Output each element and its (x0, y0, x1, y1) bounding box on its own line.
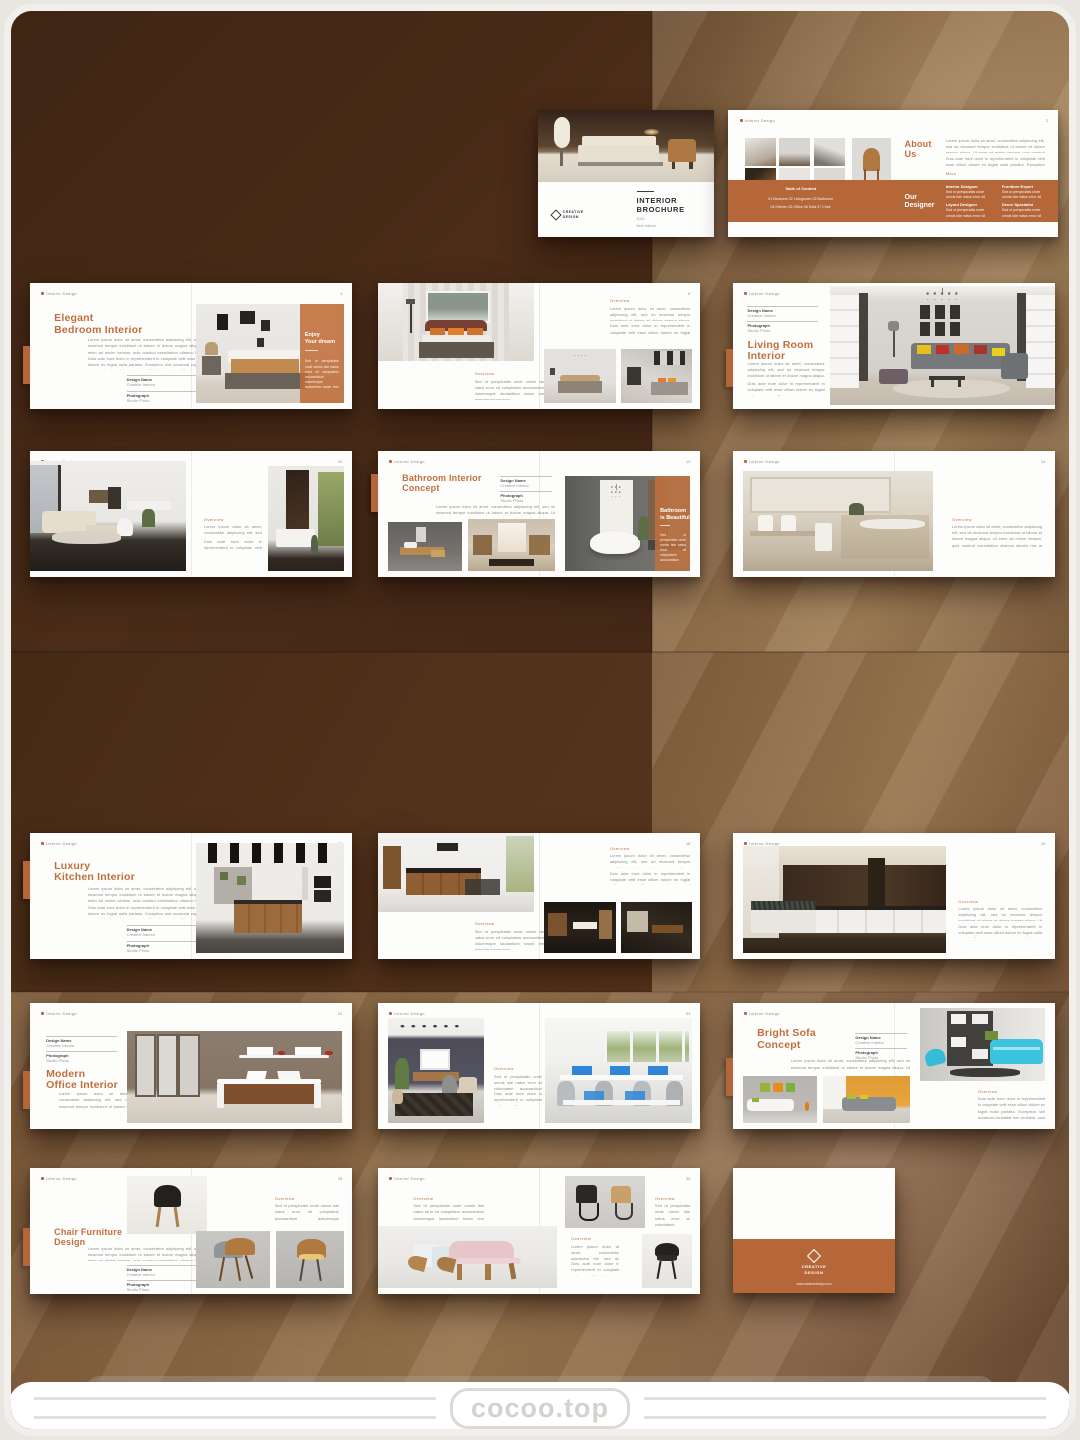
tan-chair-shape (611, 1186, 630, 1203)
bathroom-photo (468, 519, 555, 571)
chair-leg-shape (671, 1261, 677, 1280)
rug-shape (950, 1068, 1020, 1077)
island-edge-shape (573, 922, 598, 928)
spread-header: Interior Design (389, 1176, 425, 1181)
spread-title: ElegantBedroom Interior (54, 313, 142, 336)
bed-base-shape (225, 373, 308, 389)
plant-shape (220, 872, 229, 881)
body-text: Sed ut perspiciatis unde omnis iste natu… (655, 1203, 690, 1226)
desk-row-shape (563, 1100, 680, 1105)
spread-bright-sofa: Interior Design 26 Bright SofaConcept De… (733, 1003, 1055, 1129)
gallery-thumb (779, 138, 810, 166)
cushion-shape (752, 1098, 759, 1103)
rug-shape (489, 559, 534, 565)
bathroom-main-photo: Bathroomis Beautiful Sed ut perspiciatis… (565, 476, 691, 571)
bookmark-tab (371, 474, 378, 512)
sofa-photo (743, 1076, 817, 1123)
watermark-text: cocoo.top (450, 1388, 630, 1429)
page-number: 24 (686, 1011, 690, 1016)
wall-shelf-shape (239, 1055, 330, 1059)
monitor-blue-shape (584, 1091, 605, 1099)
cover-photo (538, 110, 714, 182)
body-text: Duis aute irure dolor in reprehenderit i… (88, 356, 207, 370)
wall-frame-shape (217, 314, 229, 330)
header-label: Interior Design (749, 1011, 780, 1016)
wood-wall-shape (783, 865, 945, 906)
oven-shape (314, 890, 330, 902)
credit-design: Design NameCreative Interior (127, 1265, 204, 1277)
spread-kitchen-wide: Interior Design 20 Overview Lorem ipsum … (733, 833, 1055, 959)
red-accent-shape (325, 1051, 333, 1055)
pillow-shape (860, 1095, 869, 1100)
spread-header: Interior Design (744, 1011, 780, 1016)
overlay-text: Sed ut perspiciatis unde omnis iste natu… (660, 533, 686, 561)
lamp-stem-shape (893, 331, 895, 357)
bathtub-shape (860, 519, 925, 529)
plant-shape (985, 1031, 998, 1040)
wall-frame-shape (261, 320, 270, 331)
divider-rule (637, 191, 655, 192)
window-green-shape (506, 836, 534, 892)
chair-leg-shape (457, 1264, 462, 1280)
art-square-shape (760, 1083, 770, 1092)
body-text: Lorem ipsum dolor sit amet, consectetur … (88, 886, 207, 902)
brand-logo: CREATIVEDESIGN (552, 210, 584, 219)
spread-header: Interior Design (41, 841, 77, 846)
carpet-shape (395, 1093, 472, 1116)
glass-door-shape (135, 1034, 156, 1097)
spread-living-room: Interior Design Design NameCreative Inte… (733, 283, 1055, 409)
mini-label: Overview (610, 846, 630, 851)
window-shape (830, 295, 859, 388)
body-text: Lorem ipsum dolor sit amet, consectetur … (204, 524, 262, 538)
cyan-chair-shape (923, 1047, 946, 1067)
table-leg-shape (931, 380, 934, 387)
ball-chair-shape (117, 518, 133, 536)
body-text: Lorem ipsum dolor sit amet, consectetur … (88, 337, 207, 353)
page-number: 28 (338, 1176, 342, 1181)
monitor-blue-shape (610, 1066, 631, 1074)
header-label: Interior Design (394, 1176, 425, 1181)
cantilever-leg-shape (579, 1203, 599, 1221)
floor-lamp-shape (554, 117, 570, 147)
overlay-text: Sed ut perspiciatis unde omnis iste natu… (305, 359, 339, 390)
spread-header: Interior Design (41, 1176, 77, 1181)
body-text: Duis aute irure dolor in reprehenderit i… (204, 539, 262, 553)
mini-label: Overview (204, 517, 224, 522)
cover-title: INTERIORBROCHURE (637, 196, 685, 214)
bedroom-photo (621, 349, 692, 403)
spread-title: LuxuryKitchen Interior (54, 861, 135, 884)
window-shape (509, 283, 534, 361)
website-url[interactable]: www.creativedesign.com (733, 1282, 895, 1286)
wall-frame-shape (257, 338, 264, 347)
art-square-shape (773, 1083, 783, 1092)
shelf-column-shape (868, 858, 884, 905)
credit-photo: PhotographStudio Photo (747, 321, 818, 333)
cyan-sofa-photo (920, 1008, 1046, 1081)
monitor-shape (420, 1049, 449, 1070)
band-heading: OurDesigner (905, 194, 935, 210)
red-accent-shape (278, 1051, 286, 1055)
track-lights-shape (397, 1022, 465, 1030)
bed-shape (651, 382, 688, 395)
body-text: Duis aute irure dolor in reprehenderit i… (610, 323, 691, 337)
credit-design: Design NameCreative Interior (46, 1036, 117, 1048)
island-base-shape (751, 910, 816, 934)
credit-photo: PhotographStudio Photo (500, 491, 552, 503)
template-preview-poster: CREATIVEDESIGN INTERIORBROCHURE 2022 Bes… (0, 0, 1080, 1440)
watermark-line (34, 1397, 436, 1419)
stools-shape (465, 879, 499, 895)
spread-bathroom-wide: Interior Design 14 Overview Lorem ipsum … (733, 451, 1055, 577)
brand-name: CREATIVE (733, 1264, 895, 1269)
body-text: Lorem ipsum dolor sit amet, consectetur … (436, 504, 555, 518)
mini-label: Overview (475, 921, 495, 926)
bed-base-shape (419, 342, 494, 358)
glass-door-shape (157, 1034, 178, 1097)
bookmark-tab (23, 1228, 30, 1266)
chair-leg-shape (485, 1264, 490, 1280)
desk-leg-shape (217, 1084, 223, 1108)
body-text: Lorem ipsum dolor sit amet, consectetur … (946, 138, 1045, 153)
spread-title: Living RoomInterior (747, 340, 813, 363)
pillow-shape (936, 345, 950, 353)
desk-row-shape (560, 1075, 683, 1080)
chair-leg-shape (235, 1257, 241, 1281)
mini-label: Overview (571, 1236, 591, 1241)
pillow-shape (847, 1095, 856, 1100)
mini-label: Overview (610, 298, 630, 303)
watermark-line (644, 1397, 1046, 1419)
spread-cover: CREATIVEDESIGN INTERIORBROCHURE 2022 Bes… (538, 110, 714, 237)
body-text: Duis aute irure dolor in reprehenderit i… (946, 156, 1045, 169)
seam-line (4, 991, 1076, 993)
mini-label: Overview (275, 1196, 295, 1201)
shelf-box-shape (295, 1047, 321, 1054)
brand-mark-icon (389, 1177, 392, 1180)
credit-design: Design NameCreative Interior (855, 1033, 907, 1045)
mini-label: Overview (655, 1196, 675, 1201)
body-text: Duis aute irure dolor in reprehenderit i… (571, 1261, 619, 1276)
doorway-glow-shape (599, 910, 612, 938)
ceiling-beams-shape (208, 843, 332, 863)
brand-mark-icon (41, 1177, 44, 1180)
header-label: Interior Design (394, 459, 425, 464)
spread-back-cover: CREATIVE DESIGN www.creativedesign.com (733, 1168, 895, 1293)
photo-overlay: Bathroomis Beautiful Sed ut perspiciatis… (655, 476, 690, 571)
wood-cabinet-shape (473, 535, 492, 556)
chair-photo (565, 1176, 646, 1229)
window-shape (378, 283, 403, 361)
spread-living-gallery: Interior Design 10 Overview Lorem ipsum … (30, 451, 352, 577)
spread-luxury-kitchen: Interior Design 16 LuxuryKitchen Interio… (30, 833, 352, 959)
plant-shape (395, 1058, 409, 1089)
spread-modern-office: Interior Design 22 Design NameCreative I… (30, 1003, 352, 1129)
body-text: Duis aute irure dolor in reprehenderit i… (494, 1091, 542, 1106)
body-text: Duis aute irure dolor in reprehenderit i… (958, 924, 1042, 938)
mini-label: Overview (958, 899, 978, 904)
rounded-frame: CREATIVEDESIGN INTERIORBROCHURE 2022 Bes… (4, 4, 1076, 1436)
brand-mark-icon (389, 460, 392, 463)
brand-mark-icon (389, 1012, 392, 1015)
header-label: Interior Design (749, 459, 780, 464)
body-text: Sed ut perspiciatis unde omnis iste natu… (275, 1203, 339, 1221)
back-cover-band: CREATIVE DESIGN www.creativedesign.com (733, 1239, 895, 1293)
art-square-shape (786, 1083, 796, 1092)
spread-bedroom-gallery: 6 Overview Sed ut perspiciatis unde omni… (378, 283, 700, 409)
brand-mark-icon (740, 119, 743, 122)
page-number: 18 (686, 841, 690, 846)
bathtub-shape (590, 531, 640, 554)
monitor-blue-shape (572, 1066, 593, 1074)
pastel-chairs-photo (378, 1226, 557, 1288)
body-text: Lorem ipsum dolor sit amet, consectetur … (952, 524, 1042, 549)
media-column-shape (286, 470, 309, 529)
spread-chair-furniture: Interior Design 28 Chair FurnitureDesign… (30, 1168, 352, 1294)
toc-title: Table of Content (768, 186, 834, 191)
desk-front-shape (224, 1084, 315, 1104)
nightstand-shape (202, 356, 221, 376)
chair-leg-shape (244, 1255, 253, 1278)
mirror-shape (416, 527, 426, 542)
credit-design: Design NameCreative Interior (747, 306, 818, 318)
curtain-shape (859, 293, 868, 382)
seam-line (4, 651, 1076, 653)
mini-label: Overview (413, 1196, 433, 1201)
chair-leg-shape (672, 162, 676, 169)
header-label: Interior Design (394, 1011, 425, 1016)
black-chair-shape (576, 1185, 597, 1203)
designer-info: Sed ut perspiciatis unde omnis iste natu… (946, 208, 992, 218)
chair-photo (196, 1231, 270, 1288)
spread-kitchen-gallery: 18 Overview Sed ut perspiciatis unde omn… (378, 833, 700, 959)
brand-mark-icon (744, 1012, 747, 1015)
bedroom-photo: EnjoyYour dream Sed ut perspiciatis unde… (196, 304, 344, 402)
wood-cabinet-shape (548, 913, 567, 935)
credit-photo: PhotographStudio Photo (127, 1280, 204, 1292)
plant-shape (311, 535, 319, 554)
bedroom-photo (544, 349, 616, 403)
office-photo (127, 1031, 343, 1123)
monitor-blue-shape (625, 1091, 646, 1099)
designer-name: Decor Specialist (1002, 202, 1033, 207)
ottoman-shape (879, 369, 908, 383)
bed-base-shape (558, 381, 601, 393)
overlay-title: Bathroomis Beautiful (660, 508, 690, 521)
cabinet-shape (276, 529, 315, 547)
cover-tagline: Best Interior (637, 224, 656, 230)
brand-mark-icon (744, 292, 747, 295)
pillow-shape (917, 345, 931, 353)
kitchen-main-photo (378, 833, 534, 912)
wardrobe-shape (627, 367, 641, 385)
designer-info: Sed ut perspiciatis unde omnis iste natu… (946, 190, 992, 200)
shelf-box-shape (247, 1047, 273, 1054)
shelf-box-shape (951, 1037, 966, 1047)
pillow-shape (954, 344, 970, 354)
chair-leg-shape (317, 1259, 323, 1281)
sofa-shadow-shape (578, 162, 662, 166)
chair-leg-shape (156, 1207, 162, 1227)
spread-header: Interior Design (389, 1011, 425, 1016)
brand-diamond-icon (550, 209, 561, 220)
oven-shape (314, 876, 330, 888)
body-text: Sed ut perspiciatis unde omnis iste natu… (475, 929, 546, 950)
kitchen-photo (743, 846, 946, 953)
page-number: 14 (1041, 459, 1045, 464)
chair-shape (863, 148, 880, 170)
bathroom-photo (388, 522, 462, 571)
towel-shape (815, 523, 832, 551)
body-text: Sed ut perspiciatis unde omnis iste natu… (475, 379, 546, 400)
bookmark-tab (23, 861, 30, 899)
chair-leg-shape (174, 1207, 180, 1227)
page-number: 10 (338, 459, 342, 464)
brand-diamond-icon (807, 1249, 821, 1263)
window-shape (1026, 295, 1055, 388)
office-photo (388, 1018, 485, 1123)
body-text: Lorem ipsum dolor sit amet, consectetur … (571, 1244, 619, 1260)
body-text: Lorem ipsum dolor sit amet, consectetur … (958, 906, 1042, 921)
brand-mark-icon (41, 292, 44, 295)
spread-title: Bright SofaConcept (757, 1028, 816, 1051)
body-text: Lorem ipsum dolor sit amet, consectetur … (791, 1058, 910, 1071)
header-label: Interior Design (46, 1011, 77, 1016)
chair-photo (276, 1231, 344, 1288)
cover-year: 2022 (637, 217, 645, 223)
bookmark-tab (23, 1071, 30, 1109)
hood-shape (302, 867, 308, 900)
cabinet-shape (108, 487, 120, 509)
bright-window-shape (627, 911, 648, 931)
spread-header: Interior Design (41, 291, 77, 296)
header-label: Interior Design (46, 291, 77, 296)
spread-header: Interior Design (41, 1011, 77, 1016)
chair-photo (642, 1234, 692, 1288)
header-label: Interior Design (46, 1176, 77, 1181)
overlay-rule (305, 350, 318, 351)
brand-mark-icon (744, 460, 747, 463)
pillow-shape (992, 348, 1006, 356)
laptop-shape (247, 1071, 268, 1079)
designer-name: Furniture Expert (1002, 184, 1033, 189)
shelf-box-shape (972, 1014, 987, 1024)
sink-shape (404, 542, 417, 547)
desk-leg-shape (314, 1084, 320, 1108)
overlay-title: EnjoyYour dream (305, 332, 335, 345)
chair-seat-shape (657, 1255, 677, 1260)
designer-info: Sed ut perspiciatis unde omnis iste natu… (1002, 190, 1048, 200)
mini-label: Overview (978, 1089, 998, 1094)
rug-shape (893, 379, 1010, 398)
designer-name: Interior Designer (946, 184, 978, 189)
toc-line: 01 Bedroom 02 Livingroom 03 Bathroom (748, 197, 854, 202)
body-text: Lorem ipsum dolor sit amet, consectetur … (610, 853, 691, 868)
body-text: Lorem ipsum dolor sit amet, consectetur … (747, 361, 824, 379)
watermark-bar: cocoo.top (8, 1382, 1072, 1434)
chair-photo (127, 1176, 208, 1234)
credit-design: Design NameCreative Interior (500, 476, 552, 488)
floor-lamp-shape (410, 303, 412, 333)
spread-elegant-bedroom: Interior Design 4 ElegantBedroom Interio… (30, 283, 352, 409)
more-link[interactable]: More (946, 171, 957, 176)
spread-header: Interior Design (740, 118, 776, 123)
designer-info: Sed ut perspiciatis unde omnis iste natu… (1002, 208, 1048, 218)
brand-mark-icon (744, 842, 747, 845)
shelf-box-shape (972, 1049, 987, 1059)
body-text: Duis aute irure dolor in reprehenderit i… (88, 905, 207, 919)
greenery-shape (318, 472, 344, 545)
window-mullions-shape (604, 1031, 689, 1062)
counter-shape (652, 925, 683, 932)
spread-office-gallery: Interior Design 24 Overview Sed ut persp… (378, 1003, 700, 1129)
photo-overlay: EnjoyYour dream Sed ut perspiciatis unde… (300, 304, 344, 402)
lamp-shade-shape (406, 299, 415, 304)
bookmark-tab (726, 349, 733, 387)
bookmark-tab (23, 346, 30, 384)
plant-shape (237, 876, 246, 885)
brand-name: DESIGN (733, 1270, 895, 1275)
spread-header: Interior Design (744, 459, 780, 464)
spread-title: Bathroom InteriorConcept (402, 474, 481, 494)
spread-header: Interior Design (389, 459, 425, 464)
mini-label: Overview (475, 371, 495, 376)
chair-shell-shape (154, 1185, 181, 1207)
sofa-photo (823, 1076, 910, 1123)
table-lamp-glow (644, 129, 660, 136)
plant-shape (849, 503, 864, 515)
header-label: Interior Design (46, 841, 77, 846)
chair-leg-shape (299, 1259, 305, 1281)
monitor-blue-shape (648, 1066, 669, 1074)
brand-mark-icon (41, 842, 44, 845)
wall-frames-shape (920, 305, 965, 336)
credit-photo: PhotographStudio Photo (46, 1051, 117, 1063)
living-photo (30, 461, 186, 571)
chair-leg-shape (219, 1257, 225, 1281)
range-hood-shape (437, 843, 457, 852)
page-number: 12 (686, 459, 690, 464)
cantilever-leg-shape (615, 1203, 633, 1220)
chair-shell-shape (225, 1238, 255, 1255)
nightstand-shape (550, 368, 556, 375)
chandelier-shape (924, 288, 960, 300)
tall-cabinet-shape (383, 846, 402, 889)
bathroom-photo (743, 471, 933, 571)
sofa-seam-shape (993, 1047, 1041, 1050)
chandelier-shape (610, 484, 623, 497)
body-text: Duis aute irure dolor in reprehenderit i… (978, 1096, 1046, 1119)
bedroom-main-photo (378, 283, 534, 361)
spread-header: Interior Design (744, 291, 780, 296)
island-shape (234, 904, 302, 932)
poster-content: CREATIVEDESIGN INTERIORBROCHURE 2022 Bes… (4, 4, 1076, 1436)
wall-frame-shape (240, 311, 255, 324)
overlay-rule (660, 525, 670, 526)
spread-title: ModernOffice Interior (46, 1069, 118, 1092)
chandelier-shape (573, 353, 587, 358)
sofa-chaise-shape (1001, 353, 1028, 379)
page-number: 22 (338, 1011, 342, 1016)
body-text: Duis aute irure dolor in reprehenderit i… (747, 381, 824, 396)
window-shape (498, 523, 526, 552)
rug-shape (52, 531, 121, 544)
page-number: 20 (1041, 841, 1045, 846)
lamp-shade-shape (888, 321, 899, 331)
wood-cabinet-shape (529, 535, 550, 556)
cyan-sofa-shape (990, 1039, 1043, 1064)
